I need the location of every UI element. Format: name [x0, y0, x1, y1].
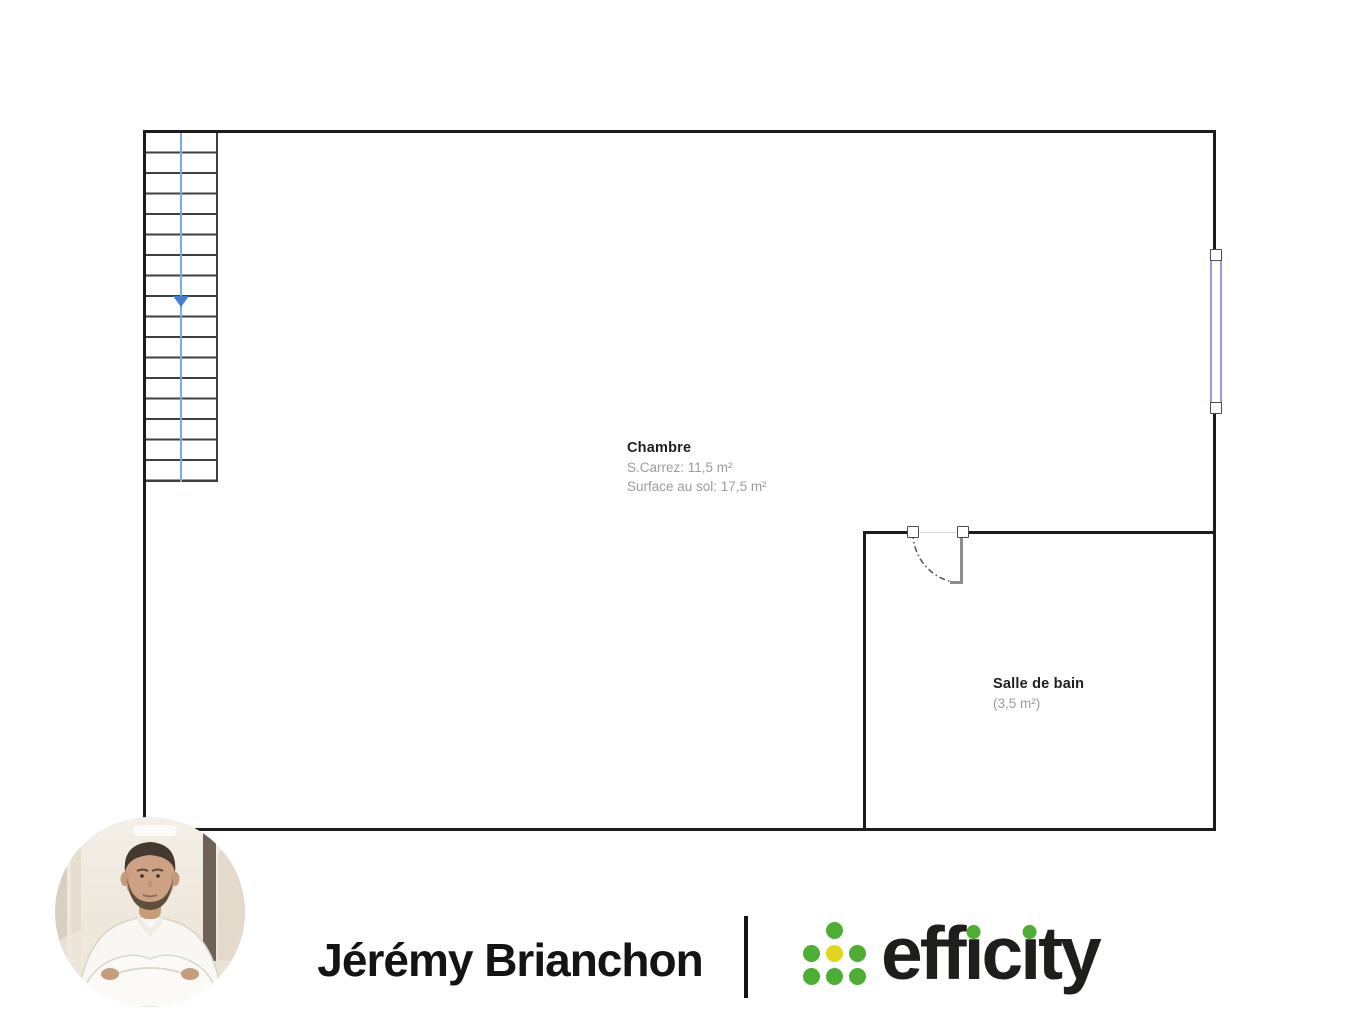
bathroom-wall-left: [863, 531, 866, 831]
wordmark-part: ty: [1038, 911, 1099, 995]
window-jamb-bottom: [1210, 402, 1222, 414]
wall-bottom: [143, 828, 1216, 831]
logo-dot-yellow: [826, 945, 843, 962]
logo-dot: [849, 968, 866, 985]
door-leaf: [960, 538, 963, 584]
logo-dot: [849, 945, 866, 962]
logo-dot: [803, 945, 820, 962]
efficity-dots-icon: [803, 922, 869, 986]
door-leaf-foot: [950, 581, 963, 584]
agent-name: Jérémy Brianchon: [290, 928, 730, 992]
door-jamb-right: [957, 526, 969, 538]
wordmark-part: c: [982, 911, 1021, 995]
window: [1210, 255, 1222, 408]
chambre-floor-area: Surface au sol: 17,5 m²: [627, 478, 767, 497]
efficity-wordmark: effıcıty: [881, 916, 1099, 1008]
staircase-guide-line: [180, 133, 182, 482]
window-jamb-top: [1210, 249, 1222, 261]
agent-portrait-image: [55, 817, 245, 1007]
room-label-salle-de-bain: Salle de bain (3,5 m²): [993, 676, 1084, 714]
logo-dot: [826, 922, 843, 939]
staircase: [146, 133, 218, 482]
floorplan: Chambre S.Carrez: 11,5 m² Surface au sol…: [0, 0, 1360, 840]
salle-de-bain-area: (3,5 m²): [993, 695, 1084, 714]
agent-avatar: [55, 817, 245, 1007]
wall-top: [143, 130, 1216, 133]
wordmark-green-dot-i: ı: [964, 916, 982, 991]
wordmark-green-dot-i: ı: [1020, 916, 1038, 991]
logo-dot: [826, 968, 843, 985]
staircase-direction-arrow-icon: [173, 296, 189, 307]
logo-dot: [803, 968, 820, 985]
footer-divider: [744, 916, 748, 998]
bathroom-wall-top-right-segment: [961, 531, 1216, 534]
wordmark-part: eff: [881, 911, 964, 995]
door-jamb-left: [907, 526, 919, 538]
chambre-title: Chambre: [627, 440, 767, 456]
wall-right: [1213, 130, 1216, 831]
salle-de-bain-title: Salle de bain: [993, 676, 1084, 692]
chambre-carrez-area: S.Carrez: 11,5 m²: [627, 459, 767, 478]
room-label-chambre: Chambre S.Carrez: 11,5 m² Surface au sol…: [627, 440, 767, 496]
